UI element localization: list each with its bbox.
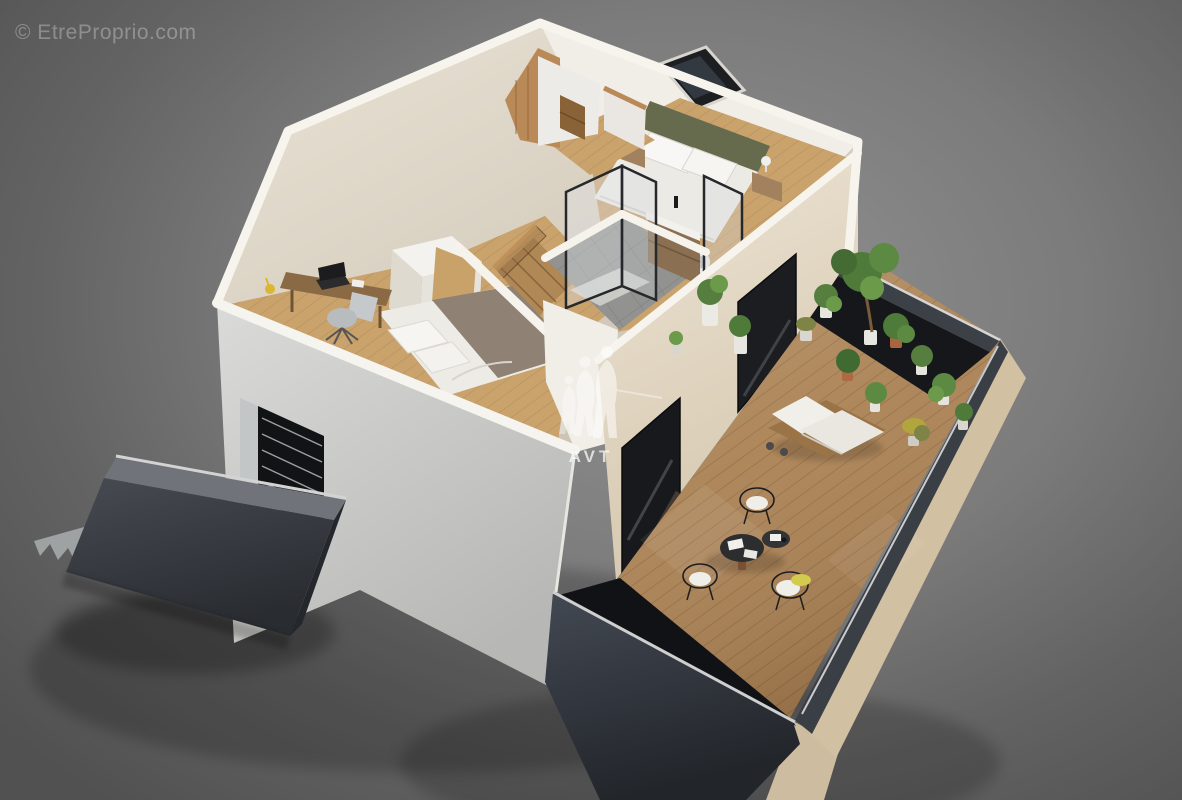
coffee-table-large [720, 534, 764, 562]
avt-logo-text: AVT [548, 447, 634, 467]
render-scene [0, 0, 1182, 800]
etreproprio-watermark: © EtreProprio.com [15, 21, 197, 45]
floorplan-render-image: © EtreProprio.com AVT [0, 0, 1182, 800]
